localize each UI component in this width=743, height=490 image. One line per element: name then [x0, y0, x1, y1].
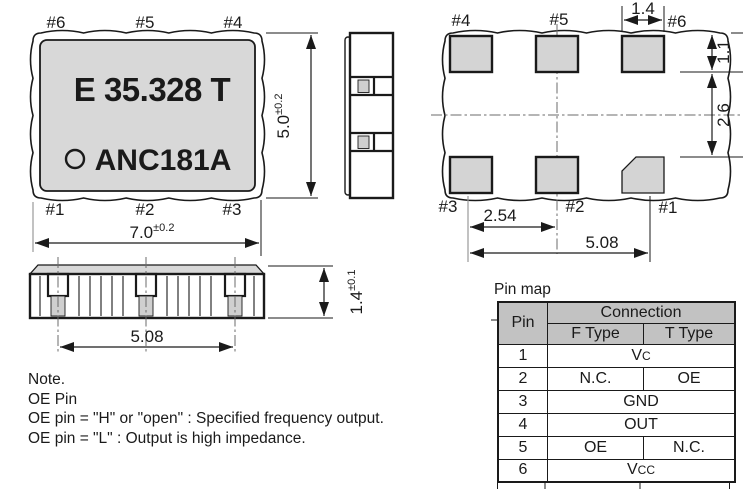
header-connection: Connection: [548, 302, 736, 323]
pin-label: #5: [136, 13, 155, 32]
side-view: [345, 33, 393, 198]
dim-pitch-label: 2.54: [483, 206, 516, 225]
pad-3: [450, 157, 492, 193]
pin-number: 4: [498, 413, 548, 436]
pin-number: 6: [498, 459, 548, 482]
note-title: Note.: [28, 370, 384, 390]
pad-6: [622, 36, 664, 72]
pin-number: 5: [498, 436, 548, 459]
table-row: 3 GND: [498, 390, 735, 413]
table-row: 1 VC: [498, 344, 735, 367]
pin-label: #6: [47, 13, 66, 32]
dim-pad-height-label: 1.1: [714, 40, 733, 64]
pin-label: #4: [452, 11, 471, 30]
connection-cell-f: N.C.: [548, 367, 644, 390]
pin-label: #1: [46, 200, 65, 219]
header-pin: Pin: [498, 302, 548, 344]
table-row: 4 OUT: [498, 413, 735, 436]
header-t-type: T Type: [644, 323, 736, 344]
pin-number: 1: [498, 344, 548, 367]
connection-cell: OUT: [548, 413, 736, 436]
connection-cell: VC: [548, 344, 736, 367]
connection-cell-t: N.C.: [644, 436, 736, 459]
pin-map: Pin map Pin Connection F Type T Type 1 V…: [497, 281, 736, 483]
note-oe-pin: OE Pin: [28, 390, 384, 410]
pad-4: [450, 36, 492, 72]
pin-label: #4: [224, 13, 243, 32]
note-block: Note. OE Pin OE pin = "H" or "open" : Sp…: [28, 370, 384, 448]
note-oe-low: OE pin = "L" : Output is high impedance.: [28, 429, 384, 449]
connection-cell-f: OE: [548, 436, 644, 459]
table-row: 2 N.C. OE: [498, 367, 735, 390]
connection-cell: VCC: [548, 459, 736, 482]
oscillator-datasheet-drawing: E 35.328 T ANC181A #6 #5 #4 #1 #2 #3 7.0…: [0, 0, 743, 490]
top-view: E 35.328 T ANC181A #6 #5 #4 #1 #2 #3 7.0…: [31, 13, 319, 256]
connection-cell-t: OE: [644, 367, 736, 390]
pin-label: #5: [550, 10, 569, 29]
dim-height-label: 5.0±0.2: [273, 94, 293, 139]
pin-number: 2: [498, 367, 548, 390]
side-castellation: [358, 136, 369, 149]
pin-label: #3: [439, 197, 458, 216]
marking-part-number: ANC181A: [95, 144, 232, 177]
pin-map-title: Pin map: [494, 281, 736, 299]
side-castellation: [358, 80, 369, 93]
pin-label: #3: [223, 200, 242, 219]
pin-label: #2: [566, 197, 585, 216]
table-row: 5 OE N.C.: [498, 436, 735, 459]
front-lid: [30, 265, 264, 274]
pin-map-table: Pin Connection F Type T Type 1 VC 2 N.C.…: [497, 301, 736, 483]
header-f-type: F Type: [548, 323, 644, 344]
dim-span-label: 5.08: [585, 233, 618, 252]
dim-row-gap-label: 2.6: [714, 103, 733, 127]
note-oe-high: OE pin = "H" or "open" : Specified frequ…: [28, 409, 384, 429]
dim-front-span-label: 5.08: [130, 327, 163, 346]
front-view: 5.08 1.4±0.1: [30, 257, 366, 352]
dim-pad-width-label: 1.4: [631, 0, 655, 18]
side-body: [350, 33, 393, 198]
pin-label: #2: [136, 200, 155, 219]
pad-5: [536, 36, 578, 72]
dim-thickness-label: 1.4±0.1: [346, 270, 366, 315]
table-row: 6 VCC: [498, 459, 735, 482]
pad-2: [536, 157, 578, 193]
pin-label: #1: [659, 198, 678, 217]
pin-number: 3: [498, 390, 548, 413]
connection-cell: GND: [548, 390, 736, 413]
dim-width-label: 7.0±0.2: [130, 222, 175, 242]
pin-label: #6: [668, 12, 687, 31]
marking-frequency: E 35.328 T: [74, 71, 231, 108]
bottom-view: #4 #5 #6 #3 #2 #1 1.4 1.1 2.6 2.54 5.08: [431, 0, 743, 262]
